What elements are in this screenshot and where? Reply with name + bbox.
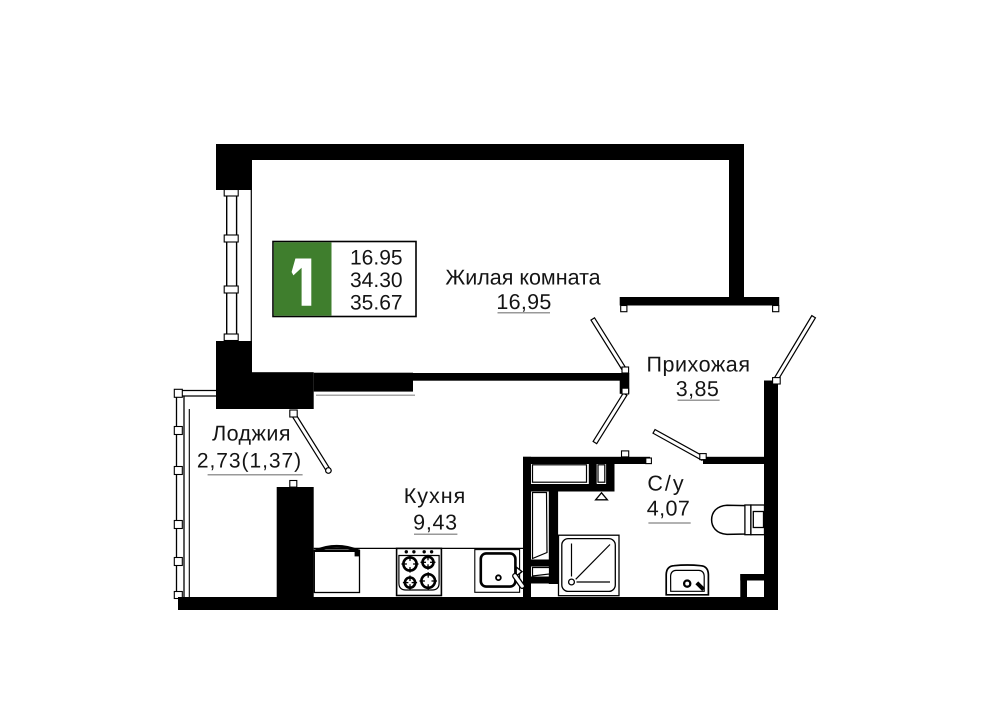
svg-text:16.95: 16.95 [350, 247, 403, 270]
svg-text:35.67: 35.67 [350, 292, 403, 315]
svg-text:34.30: 34.30 [350, 269, 403, 292]
svg-text:16,95: 16,95 [496, 290, 551, 314]
svg-text:Жилая комната: Жилая комната [445, 266, 600, 290]
svg-text:2,73(1,37): 2,73(1,37) [197, 450, 302, 473]
svg-text:9,43: 9,43 [413, 511, 458, 535]
svg-text:С/у: С/у [647, 472, 685, 496]
svg-text:Лоджия: Лоджия [212, 422, 291, 446]
svg-text:Прихожая: Прихожая [646, 353, 750, 377]
svg-text:4,07: 4,07 [647, 497, 690, 521]
svg-text:Кухня: Кухня [404, 484, 467, 508]
svg-text:3,85: 3,85 [676, 377, 719, 401]
